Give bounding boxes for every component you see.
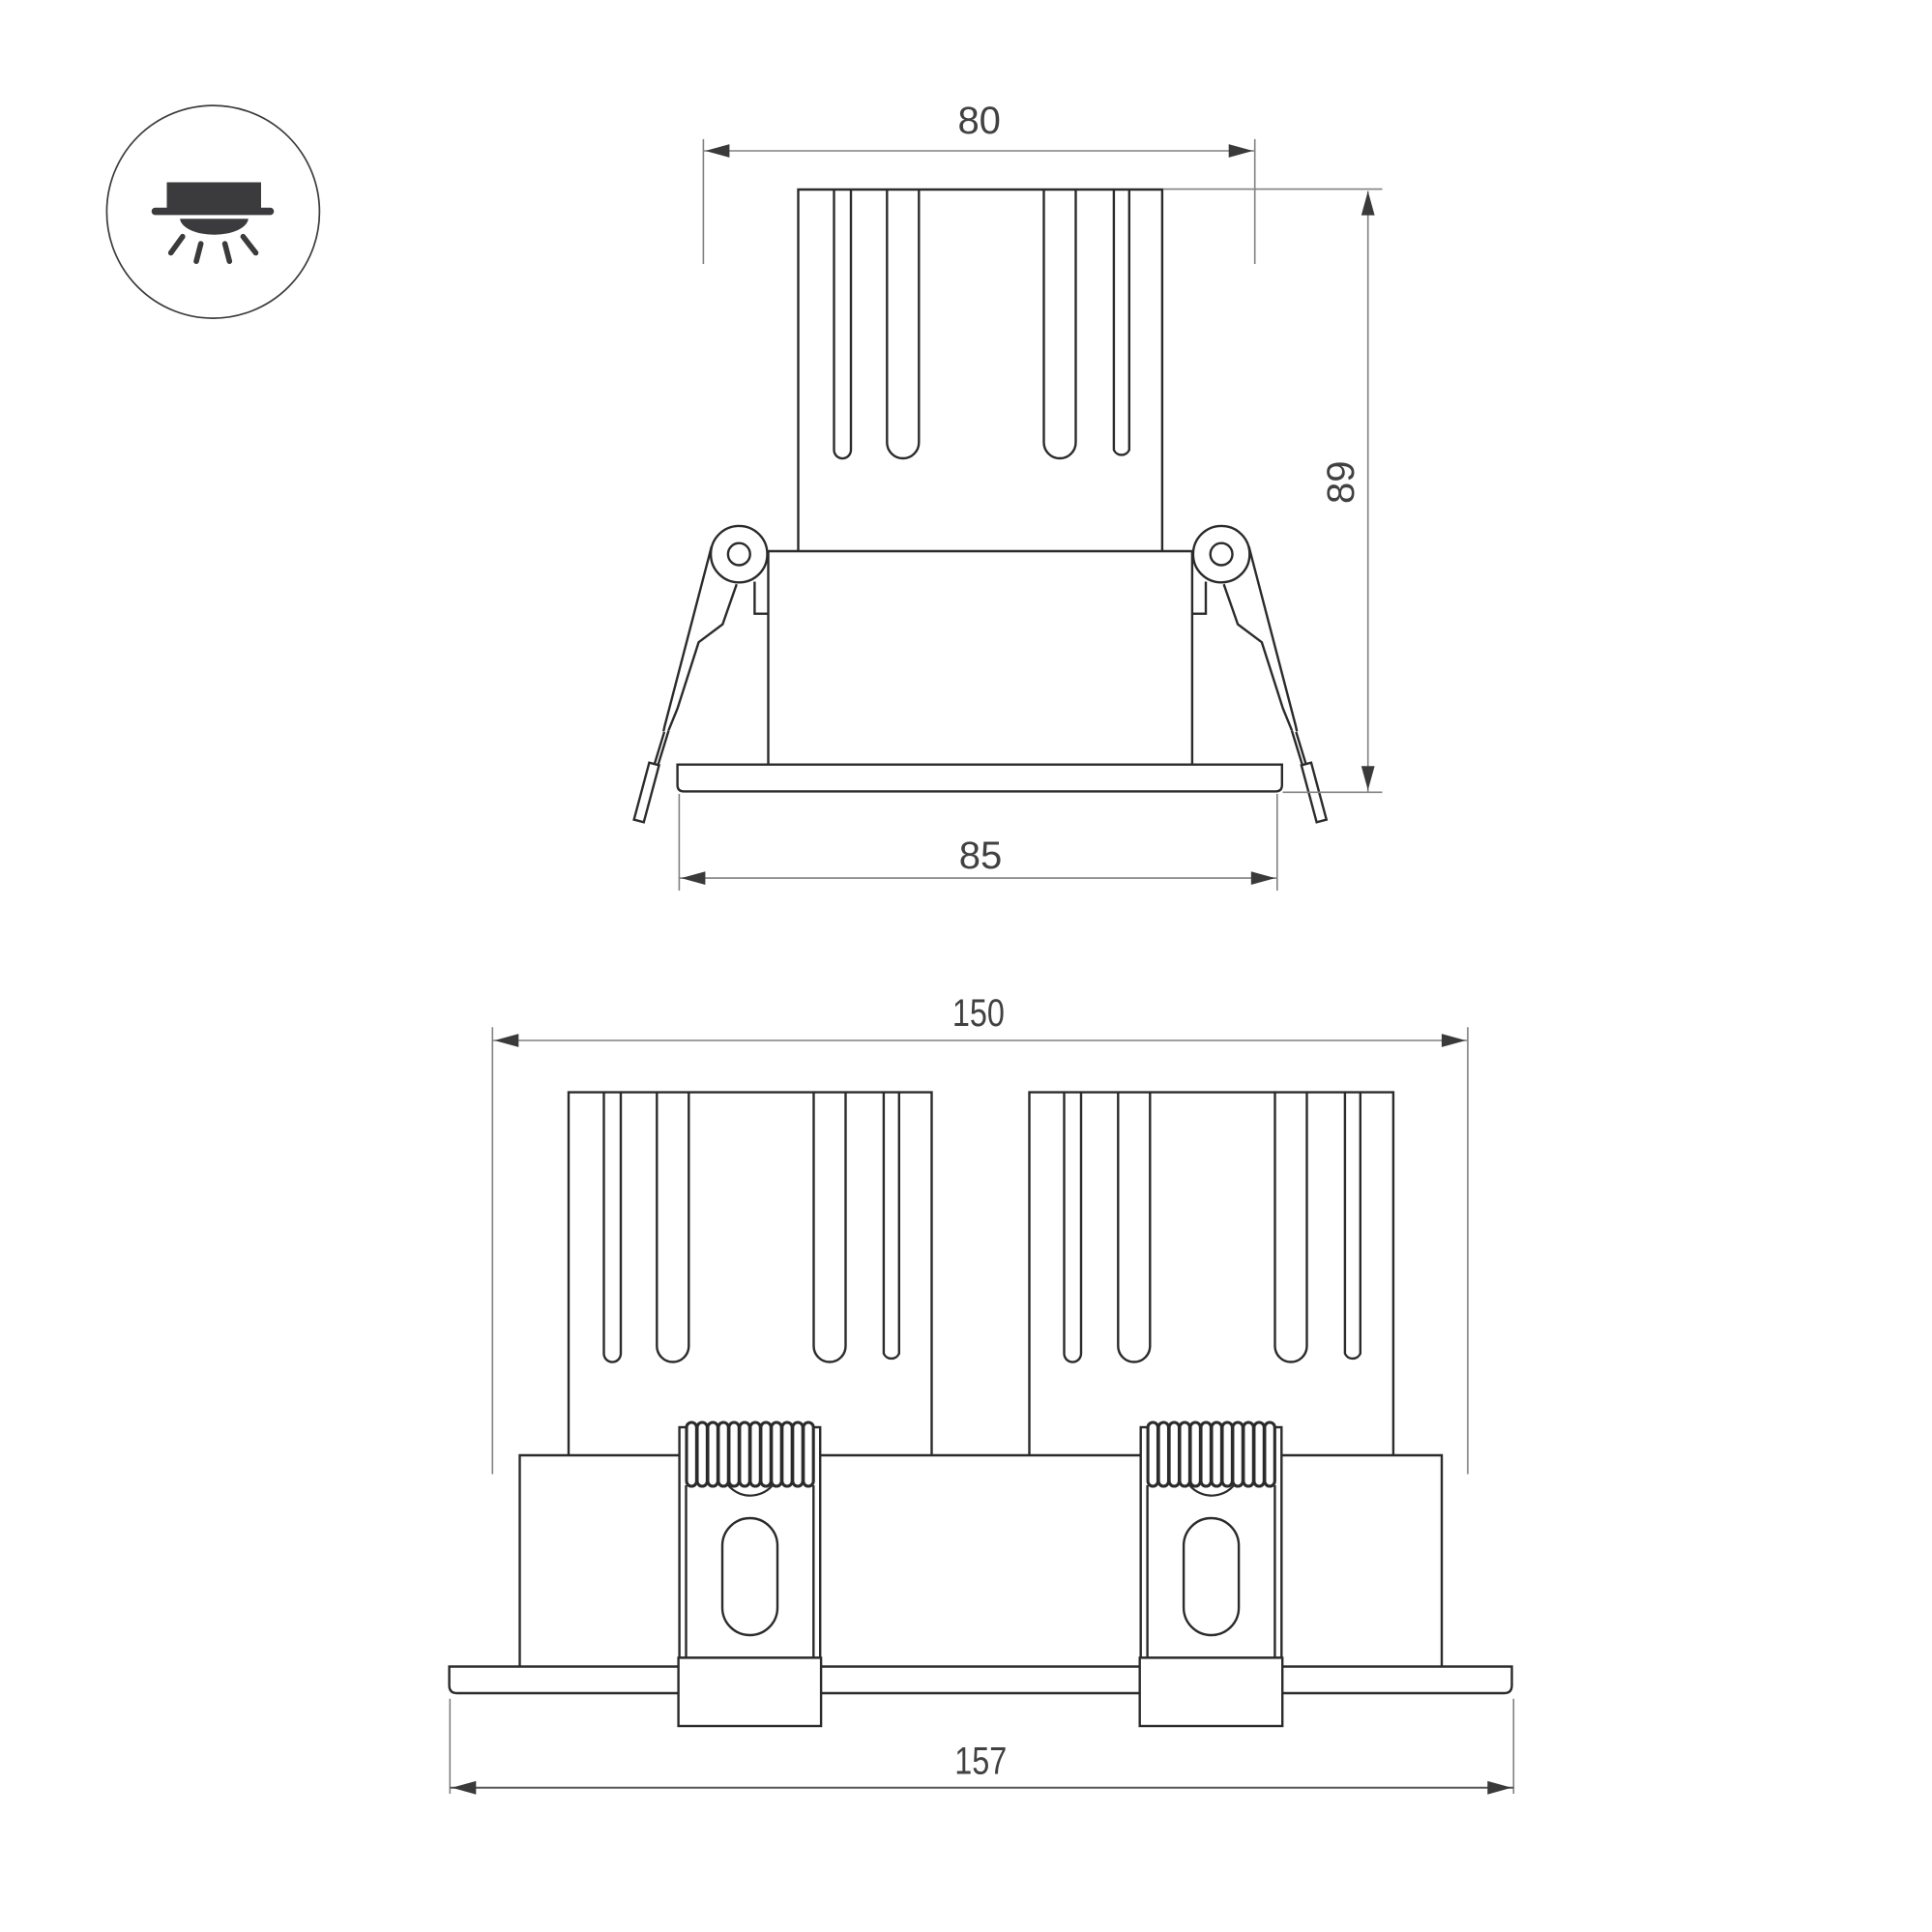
svg-text:150: 150 xyxy=(952,992,1005,1035)
svg-text:89: 89 xyxy=(1320,460,1362,504)
svg-text:85: 85 xyxy=(959,834,1003,877)
svg-text:80: 80 xyxy=(957,100,1001,142)
svg-text:157: 157 xyxy=(954,1740,1007,1782)
